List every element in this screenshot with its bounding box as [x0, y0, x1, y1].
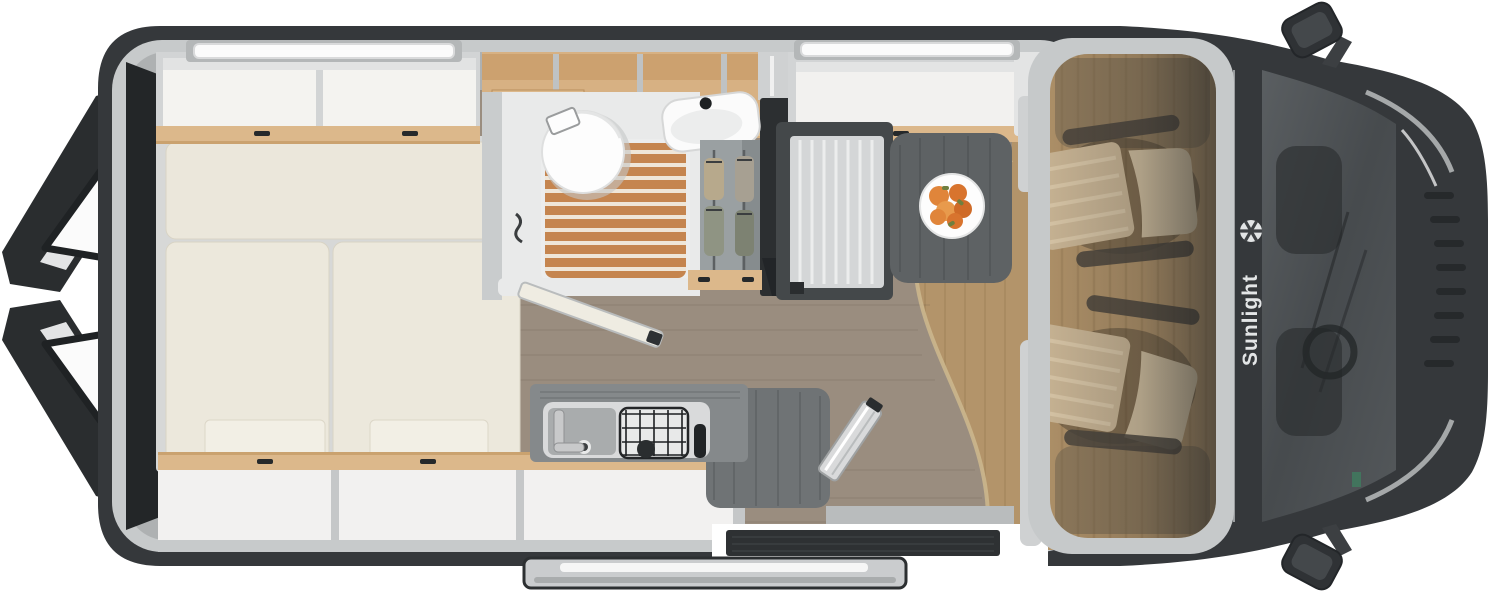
brand-wordmark: Sunlight [1239, 274, 1262, 366]
dash-sticker [1352, 472, 1361, 487]
cabinet-handle [254, 131, 270, 136]
campervan-floorplan: Sunlight [0, 0, 1500, 592]
hanging-clothes [735, 210, 754, 256]
cabinet-handle [742, 277, 754, 282]
gas-hob [620, 408, 688, 458]
cabinet-handle [698, 277, 710, 282]
hanging-clothes [704, 206, 724, 256]
sun-logo-icon [1240, 220, 1262, 242]
roof-skylight-rear [186, 40, 462, 62]
dining-table [890, 133, 1012, 283]
hanging-clothes [704, 158, 724, 200]
hanging-clothes [735, 156, 754, 202]
entry-step-mat [726, 530, 1000, 556]
cabinet-handle [402, 131, 418, 136]
bathroom-left-wall [482, 92, 502, 300]
sliding-door-panel-open [524, 558, 906, 588]
hob-control [694, 424, 706, 458]
rear-bed [156, 136, 520, 472]
dinette-bench [776, 122, 893, 300]
bed-head-cushion [166, 142, 492, 239]
overhead-cabinet-rear-top [156, 52, 480, 144]
cabinet-handle [420, 459, 436, 464]
fruit-plate [920, 174, 984, 238]
roof-skylight-living [794, 40, 1020, 60]
hob-burner [637, 440, 655, 458]
windshield [1262, 70, 1396, 522]
cab-interior [1024, 54, 1216, 538]
overhead-cabinet-rear-bottom [158, 452, 745, 552]
floorplan-svg: Sunlight [0, 0, 1500, 592]
dash-shape [1276, 146, 1342, 254]
cabinet-handle [257, 459, 273, 464]
